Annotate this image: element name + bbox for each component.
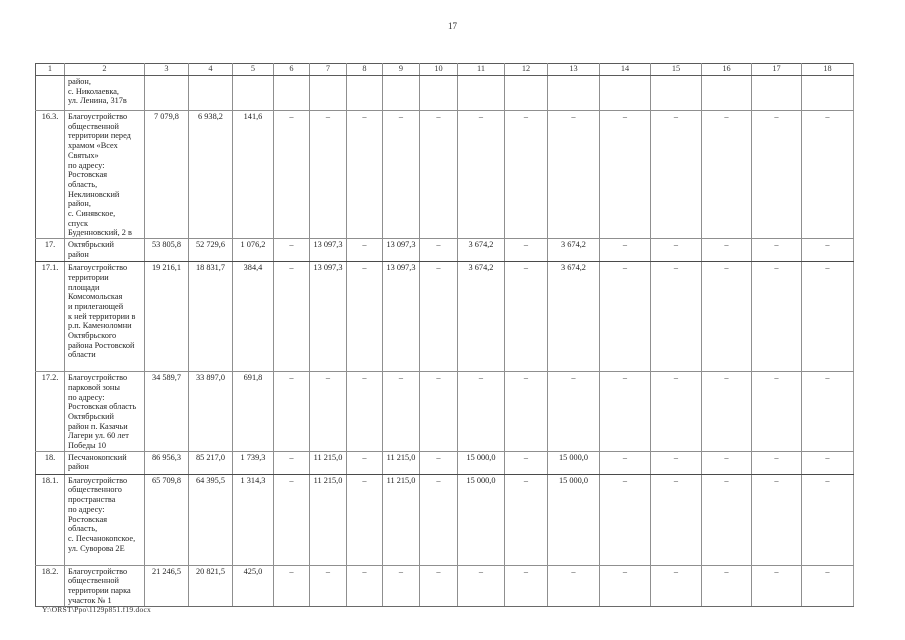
- value-cell: –: [752, 372, 802, 452]
- value-cell: –: [651, 111, 702, 239]
- value-cell: –: [274, 451, 310, 474]
- value-cell: –: [383, 372, 420, 452]
- value-cell: –: [347, 372, 383, 452]
- value-cell: 15 000,0: [458, 474, 505, 565]
- value-cell: –: [310, 372, 347, 452]
- row-number-cell: 18.1.: [36, 474, 65, 565]
- value-cell: –: [347, 451, 383, 474]
- value-cell: –: [702, 111, 752, 239]
- value-cell: [702, 76, 752, 111]
- value-cell: –: [600, 111, 651, 239]
- value-cell: –: [600, 451, 651, 474]
- value-cell: [458, 76, 505, 111]
- value-cell: –: [651, 372, 702, 452]
- value-cell: –: [274, 474, 310, 565]
- value-cell: 53 805,8: [145, 239, 189, 262]
- value-cell: 3 674,2: [458, 262, 505, 372]
- value-cell: 11 215,0: [310, 451, 347, 474]
- value-cell: –: [651, 262, 702, 372]
- value-cell: 1 314,3: [233, 474, 274, 565]
- value-cell: 34 589,7: [145, 372, 189, 452]
- project-name-cell: Благоустройство территории площади Комсо…: [65, 262, 145, 372]
- row-number-cell: 16.3.: [36, 111, 65, 239]
- value-cell: –: [420, 451, 458, 474]
- value-cell: –: [651, 451, 702, 474]
- column-number-cell: 15: [651, 64, 702, 76]
- value-cell: –: [505, 372, 548, 452]
- value-cell: –: [752, 239, 802, 262]
- value-cell: 11 215,0: [383, 474, 420, 565]
- column-number-cell: 11: [458, 64, 505, 76]
- value-cell: –: [420, 474, 458, 565]
- document-page: 17 123456789101112131415161718 район, с.…: [0, 0, 905, 640]
- value-cell: –: [752, 451, 802, 474]
- value-cell: 64 395,5: [189, 474, 233, 565]
- value-cell: [189, 76, 233, 111]
- value-cell: –: [702, 451, 752, 474]
- value-cell: –: [651, 474, 702, 565]
- value-cell: 33 897,0: [189, 372, 233, 452]
- value-cell: 13 097,3: [310, 239, 347, 262]
- value-cell: –: [274, 565, 310, 606]
- funding-table: 123456789101112131415161718 район, с. Ни…: [35, 63, 854, 607]
- value-cell: –: [347, 111, 383, 239]
- row-number-cell: 17.: [36, 239, 65, 262]
- value-cell: –: [505, 111, 548, 239]
- column-number-cell: 2: [65, 64, 145, 76]
- column-number-cell: 1: [36, 64, 65, 76]
- project-name-cell: Песчанокопский район: [65, 451, 145, 474]
- value-cell: –: [702, 262, 752, 372]
- value-cell: –: [802, 372, 854, 452]
- value-cell: [310, 76, 347, 111]
- value-cell: –: [383, 111, 420, 239]
- value-cell: –: [505, 474, 548, 565]
- value-cell: [548, 76, 600, 111]
- value-cell: 13 097,3: [310, 262, 347, 372]
- value-cell: –: [752, 565, 802, 606]
- value-cell: [347, 76, 383, 111]
- value-cell: 1 739,3: [233, 451, 274, 474]
- value-cell: [383, 76, 420, 111]
- value-cell: 3 674,2: [548, 239, 600, 262]
- column-number-cell: 16: [702, 64, 752, 76]
- column-number-cell: 12: [505, 64, 548, 76]
- value-cell: –: [548, 565, 600, 606]
- value-cell: –: [600, 565, 651, 606]
- value-cell: –: [310, 565, 347, 606]
- table-row: 17.1.Благоустройство территории площади …: [36, 262, 854, 372]
- value-cell: 19 216,1: [145, 262, 189, 372]
- page-number: 17: [0, 21, 905, 31]
- value-cell: –: [420, 111, 458, 239]
- row-number-cell: 17.2.: [36, 372, 65, 452]
- column-number-cell: 9: [383, 64, 420, 76]
- project-name-cell: Благоустройство общественной территории …: [65, 565, 145, 606]
- value-cell: [505, 76, 548, 111]
- value-cell: –: [347, 262, 383, 372]
- column-number-row: 123456789101112131415161718: [36, 64, 854, 76]
- value-cell: 13 097,3: [383, 239, 420, 262]
- value-cell: –: [274, 372, 310, 452]
- value-cell: –: [702, 474, 752, 565]
- value-cell: –: [505, 262, 548, 372]
- table-row: 18.Песчанокопский район86 956,385 217,01…: [36, 451, 854, 474]
- value-cell: [802, 76, 854, 111]
- value-cell: 11 215,0: [310, 474, 347, 565]
- value-cell: 3 674,2: [458, 239, 505, 262]
- value-cell: 21 246,5: [145, 565, 189, 606]
- value-cell: –: [347, 565, 383, 606]
- value-cell: 52 729,6: [189, 239, 233, 262]
- column-number-cell: 3: [145, 64, 189, 76]
- column-number-cell: 14: [600, 64, 651, 76]
- value-cell: 13 097,3: [383, 262, 420, 372]
- value-cell: –: [458, 111, 505, 239]
- value-cell: –: [347, 474, 383, 565]
- value-cell: 15 000,0: [548, 474, 600, 565]
- project-name-cell: Октябрьский район: [65, 239, 145, 262]
- table-row: 17.Октябрьский район53 805,852 729,61 07…: [36, 239, 854, 262]
- value-cell: [651, 76, 702, 111]
- column-number-cell: 18: [802, 64, 854, 76]
- value-cell: –: [802, 239, 854, 262]
- value-cell: [233, 76, 274, 111]
- value-cell: –: [505, 239, 548, 262]
- project-name-cell: Благоустройство парковой зоны по адресу:…: [65, 372, 145, 452]
- value-cell: –: [548, 372, 600, 452]
- value-cell: 18 831,7: [189, 262, 233, 372]
- value-cell: –: [347, 239, 383, 262]
- value-cell: –: [702, 565, 752, 606]
- column-number-cell: 5: [233, 64, 274, 76]
- value-cell: –: [505, 451, 548, 474]
- value-cell: –: [458, 565, 505, 606]
- value-cell: [420, 76, 458, 111]
- value-cell: –: [802, 111, 854, 239]
- value-cell: –: [802, 474, 854, 565]
- document-file-path: Y:\ORST\Ppo\1129p851.f19.docx: [42, 605, 151, 614]
- value-cell: 425,0: [233, 565, 274, 606]
- value-cell: 15 000,0: [458, 451, 505, 474]
- project-name-cell: Благоустройство общественной территории …: [65, 111, 145, 239]
- value-cell: –: [600, 239, 651, 262]
- value-cell: –: [420, 239, 458, 262]
- value-cell: –: [752, 262, 802, 372]
- value-cell: 65 709,8: [145, 474, 189, 565]
- value-cell: –: [600, 474, 651, 565]
- table-row: 18.1.Благоустройство общественного прост…: [36, 474, 854, 565]
- row-number-cell: 17.1.: [36, 262, 65, 372]
- value-cell: –: [802, 451, 854, 474]
- project-name-cell: район, с. Николаевка, ул. Ленина, 317в: [65, 76, 145, 111]
- value-cell: –: [702, 239, 752, 262]
- value-cell: –: [548, 111, 600, 239]
- value-cell: –: [310, 111, 347, 239]
- column-number-cell: 13: [548, 64, 600, 76]
- value-cell: –: [274, 262, 310, 372]
- value-cell: 1 076,2: [233, 239, 274, 262]
- value-cell: 11 215,0: [383, 451, 420, 474]
- column-number-cell: 8: [347, 64, 383, 76]
- value-cell: 85 217,0: [189, 451, 233, 474]
- value-cell: 141,6: [233, 111, 274, 239]
- value-cell: 6 938,2: [189, 111, 233, 239]
- row-number-cell: 18.2.: [36, 565, 65, 606]
- value-cell: –: [752, 111, 802, 239]
- table-row: 16.3.Благоустройство общественной террит…: [36, 111, 854, 239]
- value-cell: 3 674,2: [548, 262, 600, 372]
- value-cell: –: [600, 262, 651, 372]
- value-cell: –: [651, 565, 702, 606]
- value-cell: –: [274, 111, 310, 239]
- value-cell: –: [651, 239, 702, 262]
- value-cell: [274, 76, 310, 111]
- value-cell: 15 000,0: [548, 451, 600, 474]
- column-number-cell: 4: [189, 64, 233, 76]
- value-cell: –: [802, 565, 854, 606]
- table-row: район, с. Николаевка, ул. Ленина, 317в: [36, 76, 854, 111]
- value-cell: –: [458, 372, 505, 452]
- value-cell: –: [752, 474, 802, 565]
- row-number-cell: [36, 76, 65, 111]
- value-cell: [752, 76, 802, 111]
- value-cell: –: [505, 565, 548, 606]
- value-cell: 691,8: [233, 372, 274, 452]
- value-cell: 20 821,5: [189, 565, 233, 606]
- table-row: 17.2.Благоустройство парковой зоны по ад…: [36, 372, 854, 452]
- column-number-cell: 17: [752, 64, 802, 76]
- value-cell: –: [383, 565, 420, 606]
- value-cell: [145, 76, 189, 111]
- value-cell: –: [274, 239, 310, 262]
- value-cell: –: [600, 372, 651, 452]
- value-cell: –: [420, 262, 458, 372]
- project-name-cell: Благоустройство общественного пространст…: [65, 474, 145, 565]
- table-row: 18.2.Благоустройство общественной террит…: [36, 565, 854, 606]
- row-number-cell: 18.: [36, 451, 65, 474]
- value-cell: 7 079,8: [145, 111, 189, 239]
- value-cell: 384,4: [233, 262, 274, 372]
- value-cell: [600, 76, 651, 111]
- value-cell: –: [802, 262, 854, 372]
- value-cell: –: [420, 372, 458, 452]
- table-header: 123456789101112131415161718: [36, 64, 854, 76]
- value-cell: 86 956,3: [145, 451, 189, 474]
- column-number-cell: 7: [310, 64, 347, 76]
- value-cell: –: [702, 372, 752, 452]
- column-number-cell: 10: [420, 64, 458, 76]
- value-cell: –: [420, 565, 458, 606]
- table-body: район, с. Николаевка, ул. Ленина, 317в16…: [36, 76, 854, 607]
- column-number-cell: 6: [274, 64, 310, 76]
